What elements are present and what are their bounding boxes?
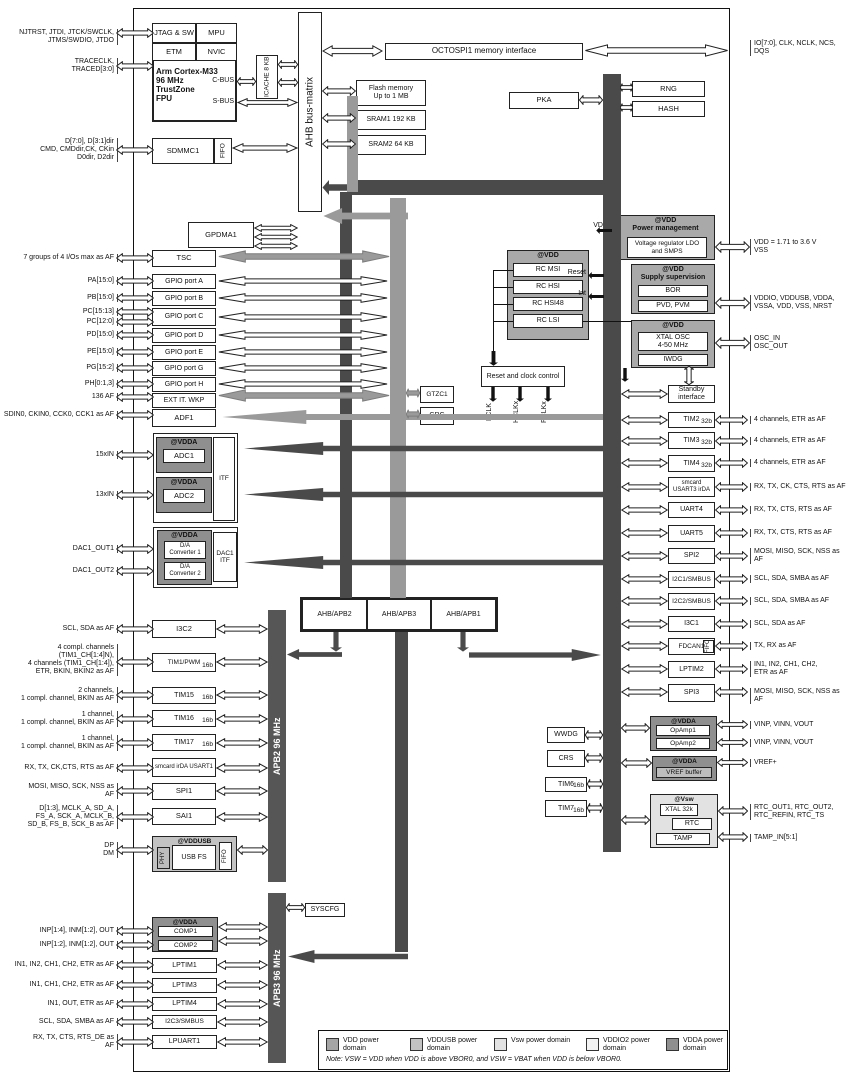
dconv2-text: D/A Converter 2 [169, 564, 200, 577]
xtal32k-block: XTAL 32k [660, 804, 698, 816]
bridge2-block: AHB/APB2 [302, 599, 367, 630]
fclk-text: FCLK [486, 403, 494, 421]
i3c1-block: I3C1 [668, 616, 715, 632]
intlbl-label: Int [566, 289, 586, 298]
gpiod-block: GPIO port D [152, 328, 216, 343]
uart5-block: UART5 [668, 525, 715, 542]
tim15-text: TIM15 [174, 692, 194, 700]
lptim1-text: LPTIM1 [172, 962, 197, 970]
rng-text: RNG [660, 85, 677, 93]
standby-text: Standby interface [678, 386, 705, 402]
legend-label-4: VDDA power domain [683, 1037, 757, 1053]
pin-pe: PE[15:0] [2, 348, 118, 356]
lptim2-block: LPTIM2 [668, 661, 715, 678]
tim17-block: TIM1716b [152, 734, 216, 751]
tim4-block: TIM432b [668, 455, 715, 472]
dconv1-text: D/A Converter 1 [169, 543, 200, 556]
wwdg-block: WWDG [547, 727, 585, 743]
pin-lptim3: IN1, CH1, CH2, ETR as AF [2, 981, 118, 989]
tim4-text: TIM4 [684, 460, 700, 468]
usart3-block: smcard USART3 irDA [668, 477, 715, 497]
fdcan1-text: FDCAN1 [678, 643, 704, 650]
nvic-block: NVIC [196, 43, 237, 61]
spi3-block: SPI3 [668, 684, 715, 702]
bridge2-text: AHB/APB2 [317, 611, 351, 619]
octospi-block: OCTOSPI1 memory interface [385, 43, 583, 60]
usbfifo-block: FIFO [219, 842, 232, 870]
tim1-size-tag: 16b [202, 662, 213, 669]
octospi-text: OCTOSPI1 memory interface [432, 47, 536, 56]
gpioa-block: GPIO port A [152, 274, 216, 289]
sbus-text: S-BUS [213, 98, 234, 106]
spi1-block: SPI1 [152, 783, 216, 800]
sram1-block: SRAM1 192 KB [356, 110, 426, 130]
pin-adf1: SDIN0, CKIN0, CCK0, CCK1 as AF [2, 411, 118, 419]
ahb1lbl-label: AHB1 96 MHz [390, 320, 406, 450]
flash-text: Flash memory Up to 1 MB [369, 85, 413, 101]
i2c2-block: I2C2/SMBUS [668, 593, 715, 610]
lptim2-text: LPTIM2 [679, 666, 704, 674]
rng-block: RNG [632, 81, 705, 97]
fdcanfifo-block: FIFO [703, 640, 714, 653]
pin-comp1: INP[1:4], INM[1:2], OUT [2, 927, 118, 935]
pin-jtag: NJTRST, JTDI, JTCK/SWCLK, JTMS/SWDIO, JT… [2, 29, 118, 45]
tim15-block: TIM1516b [152, 687, 216, 704]
gpiog-text: GPIO port G [165, 365, 204, 373]
pwrinner-text: Voltage regulator LDO and SMPS [635, 240, 699, 255]
syscfg-text: SYSCFG [311, 906, 340, 914]
uart4-block: UART4 [668, 502, 715, 518]
tim2-text: TIM2 [684, 416, 700, 424]
gpiog-block: GPIO port G [152, 361, 216, 376]
apb2bar-block: APB2 96 MHz [268, 610, 286, 882]
tim2-size-tag: 32b [701, 418, 712, 425]
rtc-text: RTC [685, 820, 699, 828]
pin-usart3: RX, TX, CK, CTS, RTS as AF [750, 483, 850, 491]
pin-lpuart1: RX, TX, CTS, RTS_DE as AF [2, 1034, 118, 1050]
tim4-size-tag: 32b [701, 462, 712, 469]
spi3-text: SPI3 [684, 689, 699, 697]
xtal32k-text: XTAL 32k [665, 806, 693, 813]
i3c2-text: I3C2 [176, 625, 192, 633]
flash-block: Flash memory Up to 1 MB [356, 80, 426, 106]
pin-dac2: DAC1_OUT2 [2, 567, 118, 575]
tim7-size-tag: 16b [573, 807, 584, 814]
pin-opamp1: VINP, VINN, VOUT [750, 721, 850, 729]
pin-tim15: 2 channels, 1 compl. channel, BKIN as AF [2, 687, 118, 703]
rtc-block: RTC [672, 818, 712, 830]
resetlbl-text: Reset [568, 269, 586, 277]
gpiob-text: GPIO port B [165, 295, 203, 303]
usbfifo-text: FIFO [222, 849, 229, 863]
i2c1-block: I2C1/SMBUS [668, 571, 715, 588]
pvd-text: PVD, PVM [656, 302, 689, 310]
tim17-size-tag: 16b [202, 741, 213, 748]
fdcanfifo-text: FIFO [705, 640, 712, 653]
legend-swatch-1 [410, 1038, 423, 1051]
vddlbl-label: VDD [580, 221, 608, 231]
pin-comp2: INP[1:2], INM[1:2], OUT [2, 941, 118, 949]
spi2-text: SPI2 [684, 552, 699, 560]
pin-pb: PB[15:0] [2, 294, 118, 302]
vrefc-text: @VDDA [672, 758, 697, 765]
pin-lptim2: IN1, IN2, CH1, CH2, ETR as AF [750, 661, 850, 677]
apb1lbl-text: APB1 96 MHz (max) [607, 563, 617, 647]
comp1-text: COMP1 [174, 928, 197, 935]
bor-block: BOR [638, 285, 708, 297]
gpioc-block: GPIO port C [152, 308, 216, 326]
comp1-block: COMP1 [158, 926, 213, 937]
ahb1lbl-text: AHB1 96 MHz [393, 356, 403, 414]
pin-tim2: 4 channels, ETR as AF [750, 416, 850, 424]
tim15-size-tag: 16b [202, 694, 213, 701]
intlbl-text: Int [578, 290, 586, 298]
pin-dac1: DAC1_OUT1 [2, 545, 118, 553]
legend-note: Note: VSW = VDD when VDD is above VBOR0,… [326, 1056, 722, 1063]
lptim3-text: LPTIM3 [172, 982, 197, 990]
adc1c-text: @VDDA [171, 439, 198, 447]
pvd-block: PVD, PVM [638, 300, 708, 312]
sram2-text: SRAM2 64 KB [368, 141, 413, 149]
pin-spi3: MOSI, MISO, SCK, NSS as AF [750, 688, 850, 704]
pin-pg: PG[15:2] [2, 364, 118, 372]
rchsi48-text: RC HSI48 [532, 300, 564, 308]
tim16-size-tag: 16b [202, 717, 213, 724]
tim16-block: TIM1616b [152, 710, 216, 727]
pwrc-text: @VDD Power management [632, 217, 698, 233]
pka-block: PKA [509, 92, 579, 109]
pka-text: PKA [536, 96, 551, 104]
pin-spi2: MOSI, MISO, SCK, NSS as AF [750, 548, 850, 564]
legend-label-2: Vsw power domain [511, 1037, 585, 1045]
usart1-text: smcard irDA USART1 [155, 764, 213, 771]
pin-opamp2: VINP, VINN, VOUT [750, 739, 850, 747]
crc-text: CRC [429, 412, 444, 420]
tim7-block: TIM716b [545, 800, 587, 817]
apb1lbl-label: APB1 96 MHz (max) [603, 530, 621, 680]
pin-rtc: RTC_OUT1, RTC_OUT2, RTC_REFIN, RTC_TS [750, 804, 850, 820]
tsc-block: TSC [152, 250, 216, 267]
fclk-label: FCLK [484, 394, 496, 430]
cbus-text: C-BUS [212, 77, 234, 85]
adf1-text: ADF1 [174, 414, 193, 422]
dconv1-block: D/A Converter 1 [164, 541, 206, 559]
bridge1-text: AHB/APB1 [446, 611, 480, 619]
i2c3-block: I2C3/SMBUS [152, 1015, 217, 1029]
gpioh-block: GPIO port H [152, 377, 216, 392]
apb3bar-text: APB3 96 MHz [272, 949, 282, 1007]
sdmmcfifo-block: FIFO [214, 138, 232, 164]
pin-vddio: VDDIO, VDDUSB, VDDA, VSSA, VDD, VSS, NRS… [750, 295, 850, 311]
pin-tamp: TAMP_IN[5:1] [750, 834, 850, 842]
usbphy-block: PHY [157, 847, 170, 869]
i2c1-text: I2C1/SMBUS [672, 576, 711, 583]
pin-extit: 136 AF [2, 393, 118, 401]
apb2bar-text: APB2 96 MHz [272, 717, 282, 775]
usbphy-text: PHY [160, 852, 167, 864]
pin-i3c1: SCL, SDA as AF [750, 620, 850, 628]
opamp1-block: OpAmp1 [656, 725, 710, 736]
ahb2lbl-label: AHB2 96 MHz [400, 181, 560, 194]
standby-block: Standby interface [668, 385, 715, 403]
busmatrix-text: AHB bus-matrix [304, 77, 315, 147]
lptim1-block: LPTIM1 [152, 958, 217, 973]
legend-swatch-0 [326, 1038, 339, 1051]
tim2-block: TIM232b [668, 412, 715, 428]
gpioh-text: GPIO port H [165, 381, 204, 389]
iwdg-block: IWDG [638, 354, 708, 366]
sai1-text: SAI1 [176, 812, 192, 820]
legend-swatch-4 [666, 1038, 679, 1051]
usbfs-text: USB FS [181, 854, 206, 862]
vswc-text: @Vsw [674, 796, 693, 803]
i2c2-text: I2C2/SMBUS [672, 598, 711, 605]
usart1-block: smcard irDA USART1 [152, 758, 216, 777]
ahb2lbl-text: AHB2 96 MHz [451, 182, 509, 192]
sai1-block: SAI1 [152, 808, 216, 825]
pin-pc1: PC[15:13] [2, 308, 118, 316]
supplyc-text: @VDD Supply supervision [641, 266, 706, 282]
lptim4-block: LPTIM4 [152, 997, 217, 1011]
bridge3-text: AHB/APB3 [382, 611, 416, 619]
rchsi48-block: RC HSI48 [513, 297, 583, 311]
pin-pc2: PC[12:0] [2, 318, 118, 326]
nvic-text: NVIC [208, 48, 226, 56]
tim16-text: TIM16 [174, 715, 194, 723]
pin-i2c1: SCL, SDA, SMBA as AF [750, 575, 850, 583]
pin-tim4: 4 channels, ETR as AF [750, 459, 850, 467]
jtag-text: JTAG & SW [154, 29, 194, 37]
gtzc1-text: GTZC1 [426, 391, 447, 398]
tim6-text: TIM6 [558, 781, 574, 789]
bor-text: BOR [665, 287, 680, 295]
i2c3-text: I2C3/SMBUS [165, 1018, 204, 1025]
rcc-block: Reset and clock control [481, 366, 565, 387]
sdmmcfifo-text: FIFO [219, 144, 226, 159]
lpuart1-text: LPUART1 [169, 1038, 200, 1046]
lptim4-text: LPTIM4 [172, 1000, 197, 1008]
usart3-text: smcard USART3 irDA [673, 480, 710, 493]
hclkx-text: HCLKx [513, 401, 521, 423]
tim3-text: TIM3 [684, 437, 700, 445]
mpu-block: MPU [196, 23, 237, 43]
bridge1-block: AHB/APB1 [431, 599, 496, 630]
tim7-text: TIM7 [558, 805, 574, 813]
tamp-block: TAMP [656, 833, 710, 845]
pin-pd: PD[15:0] [2, 331, 118, 339]
cbus-label: C-BUS [196, 76, 234, 86]
lpuart1-block: LPUART1 [152, 1035, 217, 1049]
wwdg-text: WWDG [554, 731, 578, 739]
tim1-text: TIM1/PWM [168, 659, 201, 666]
pin-osc: OSC_IN OSC_OUT [750, 335, 850, 351]
pin-trace: TRACECLK, TRACED[3:0] [2, 58, 118, 74]
gpioe-block: GPIO port E [152, 345, 216, 360]
rcc-text: Reset and clock control [487, 373, 560, 381]
iwdg-text: IWDG [663, 356, 682, 364]
sbus-label: S-BUS [196, 97, 234, 107]
apb3bar-block: APB3 96 MHz [268, 893, 286, 1063]
gpiob-block: GPIO port B [152, 291, 216, 306]
pin-lptim4: IN1, OUT, ETR as AF [2, 1000, 118, 1008]
tim6-size-tag: 16b [573, 782, 584, 789]
xtalosc-text: XTAL OSC 4-50 MHz [656, 334, 690, 350]
pin-vref: VREF+ [750, 759, 850, 767]
adc2-text: ADC2 [174, 492, 194, 500]
pclkx-text: PCLKx [541, 401, 549, 423]
xtalc-text: @VDD [662, 322, 684, 330]
vrefbuf-text: VREF buffer [666, 769, 702, 776]
adc1-text: ADC1 [174, 452, 194, 460]
xtalosc-block: XTAL OSC 4-50 MHz [638, 332, 708, 351]
pin-i2c2: SCL, SDA, SMBA as AF [750, 597, 850, 605]
pin-tim17: 1 channel, 1 compl. channel, BKIN as AF [2, 735, 118, 751]
pin-tim3: 4 channels, ETR as AF [750, 437, 850, 445]
tim1-block: TIM1/PWM16b [152, 653, 216, 672]
resetlbl-label: Reset [556, 268, 586, 277]
hclkx-label: HCLKx [511, 394, 523, 430]
pin-usart1: RX, TX, CK,CTS, RTS as AF [2, 764, 118, 772]
spi2-block: SPI2 [668, 548, 715, 564]
pclkx-label: PCLKx [539, 394, 551, 430]
sram2-block: SRAM2 64 KB [356, 135, 426, 155]
adc2c-text: @VDDA [171, 479, 198, 487]
dacitf-text: DAC1 ITF [216, 550, 233, 565]
pin-tsc: 7 groups of 4 I/Os max as AF [2, 254, 118, 262]
i3c1-text: I3C1 [684, 620, 699, 628]
pin-octospi: IO[7:0], CLK, NCLK, NCS, DQS [750, 40, 850, 56]
adcitf-block: ITF [213, 437, 235, 521]
gpdma1-text: GPDMA1 [205, 231, 237, 239]
pin-i2c3: SCL, SDA, SMBA as AF [2, 1018, 118, 1026]
sdmmc1-text: SDMMC1 [167, 147, 200, 155]
busmatrix-block: AHB bus-matrix [298, 12, 322, 212]
etm-block: ETM [152, 43, 196, 61]
spi1-text: SPI1 [176, 787, 192, 795]
vddlbl-text: VDD [593, 222, 608, 230]
sram1-text: SRAM1 192 KB [366, 116, 415, 124]
pin-pa: PA[15:0] [2, 277, 118, 285]
pin-tim16: 1 channel, 1 compl. channel, BKIN as AF [2, 711, 118, 727]
pin-usb: DP DM [2, 842, 118, 858]
rchsi-text: RC HSI [536, 283, 560, 291]
pin-vdd: VDD = 1.71 to 3.6 V VSS [750, 239, 850, 255]
usbfs-block: USB FS [172, 845, 216, 870]
legend-label-1: VDDUSB power domain [427, 1037, 501, 1053]
jtag-block: JTAG & SW [152, 23, 196, 43]
extit-text: EXT IT. WKP [164, 397, 205, 405]
syscfg-block: SYSCFG [305, 903, 345, 917]
gpioe-text: GPIO port E [165, 349, 203, 357]
icache-text: ICACHE 8 KB [263, 57, 270, 97]
icache-block: ICACHE 8 KB [256, 55, 278, 99]
comp2-text: COMP2 [174, 942, 197, 949]
hash-text: HASH [658, 105, 679, 113]
tamp-text: TAMP [674, 835, 693, 843]
crc-block: CRC [420, 407, 454, 425]
vrefbuf-block: VREF buffer [656, 767, 712, 778]
gpioc-text: GPIO port C [165, 313, 204, 321]
legend-label-0: VDD power domain [343, 1037, 417, 1053]
gtzc1-block: GTZC1 [420, 386, 454, 403]
rclsi-text: RC LSI [537, 317, 560, 325]
pin-adc1: 15xIN [2, 451, 118, 459]
hash-block: HASH [632, 101, 705, 117]
pin-uart5: RX, TX, CTS, RTS as AF [750, 529, 850, 537]
pin-tim1: 4 compl. channels (TIM1_CH[1:4]N), 4 cha… [2, 644, 118, 676]
crs-block: CRS [547, 750, 585, 767]
tsc-text: TSC [177, 254, 192, 262]
legend-swatch-3 [586, 1038, 599, 1051]
crs-text: CRS [559, 755, 574, 763]
uart5-text: UART5 [680, 530, 703, 538]
adc1-block: ADC1 [163, 449, 205, 463]
adf1-block: ADF1 [152, 409, 216, 427]
adcitf-text: ITF [219, 475, 229, 482]
pin-sai1: D[1:3], MCLK_A, SD_A, FS_A, SCK_A, MCLK_… [2, 805, 118, 829]
sdmmc1-block: SDMMC1 [152, 138, 214, 164]
pin-adc2: 13xIN [2, 491, 118, 499]
tim3-block: TIM332b [668, 432, 715, 449]
rclsi-block: RC LSI [513, 314, 583, 328]
rccluster-text: @VDD [537, 252, 559, 260]
uart4-text: UART4 [680, 506, 703, 514]
opamp2-block: OpAmp2 [656, 738, 710, 749]
pin-uart4: RX, TX, CTS, RTS as AF [750, 506, 850, 514]
opamp1-text: OpAmp1 [670, 727, 696, 734]
tim3-size-tag: 32b [701, 439, 712, 446]
pin-spi1: MOSI, MISO, SCK, NSS as AF [2, 783, 118, 799]
gpdma1-block: GPDMA1 [188, 222, 254, 248]
tim17-text: TIM17 [174, 739, 194, 747]
gpioa-text: GPIO port A [165, 278, 203, 286]
pin-sdmmc: D[7:0], D[3:1]dir CMD, CMDdir,CK, CKin D… [2, 138, 118, 162]
etm-text: ETM [166, 48, 182, 56]
bridge3-block: AHB/APB3 [367, 599, 431, 630]
extit-block: EXT IT. WKP [152, 393, 216, 408]
mcu-block-diagram: JTAG & SWMPUETMNVICArm Cortex-M33 96 MHz… [0, 0, 850, 1080]
i3c2-block: I3C2 [152, 620, 216, 638]
lptim3-block: LPTIM3 [152, 978, 217, 993]
dconv2-block: D/A Converter 2 [164, 562, 206, 580]
tim6-block: TIM616b [545, 777, 587, 792]
pin-ph: PH[0:1,3] [2, 380, 118, 388]
adc2-block: ADC2 [163, 489, 205, 503]
pin-i3c2: SCL, SDA as AF [2, 625, 118, 633]
gpiod-text: GPIO port D [165, 332, 204, 340]
pin-fdcan1: TX, RX as AF [750, 642, 850, 650]
pwrinner-block: Voltage regulator LDO and SMPS [627, 237, 707, 258]
pin-lptim1: IN1, IN2, CH1, CH2, ETR as AF [2, 961, 118, 969]
dacc-text: @VDDA [171, 532, 198, 540]
dacitf-block: DAC1 ITF [213, 532, 237, 582]
legend-swatch-2 [494, 1038, 507, 1051]
comp2-block: COMP2 [158, 940, 213, 951]
opamp2-text: OpAmp2 [670, 740, 696, 747]
mpu-text: MPU [208, 29, 225, 37]
